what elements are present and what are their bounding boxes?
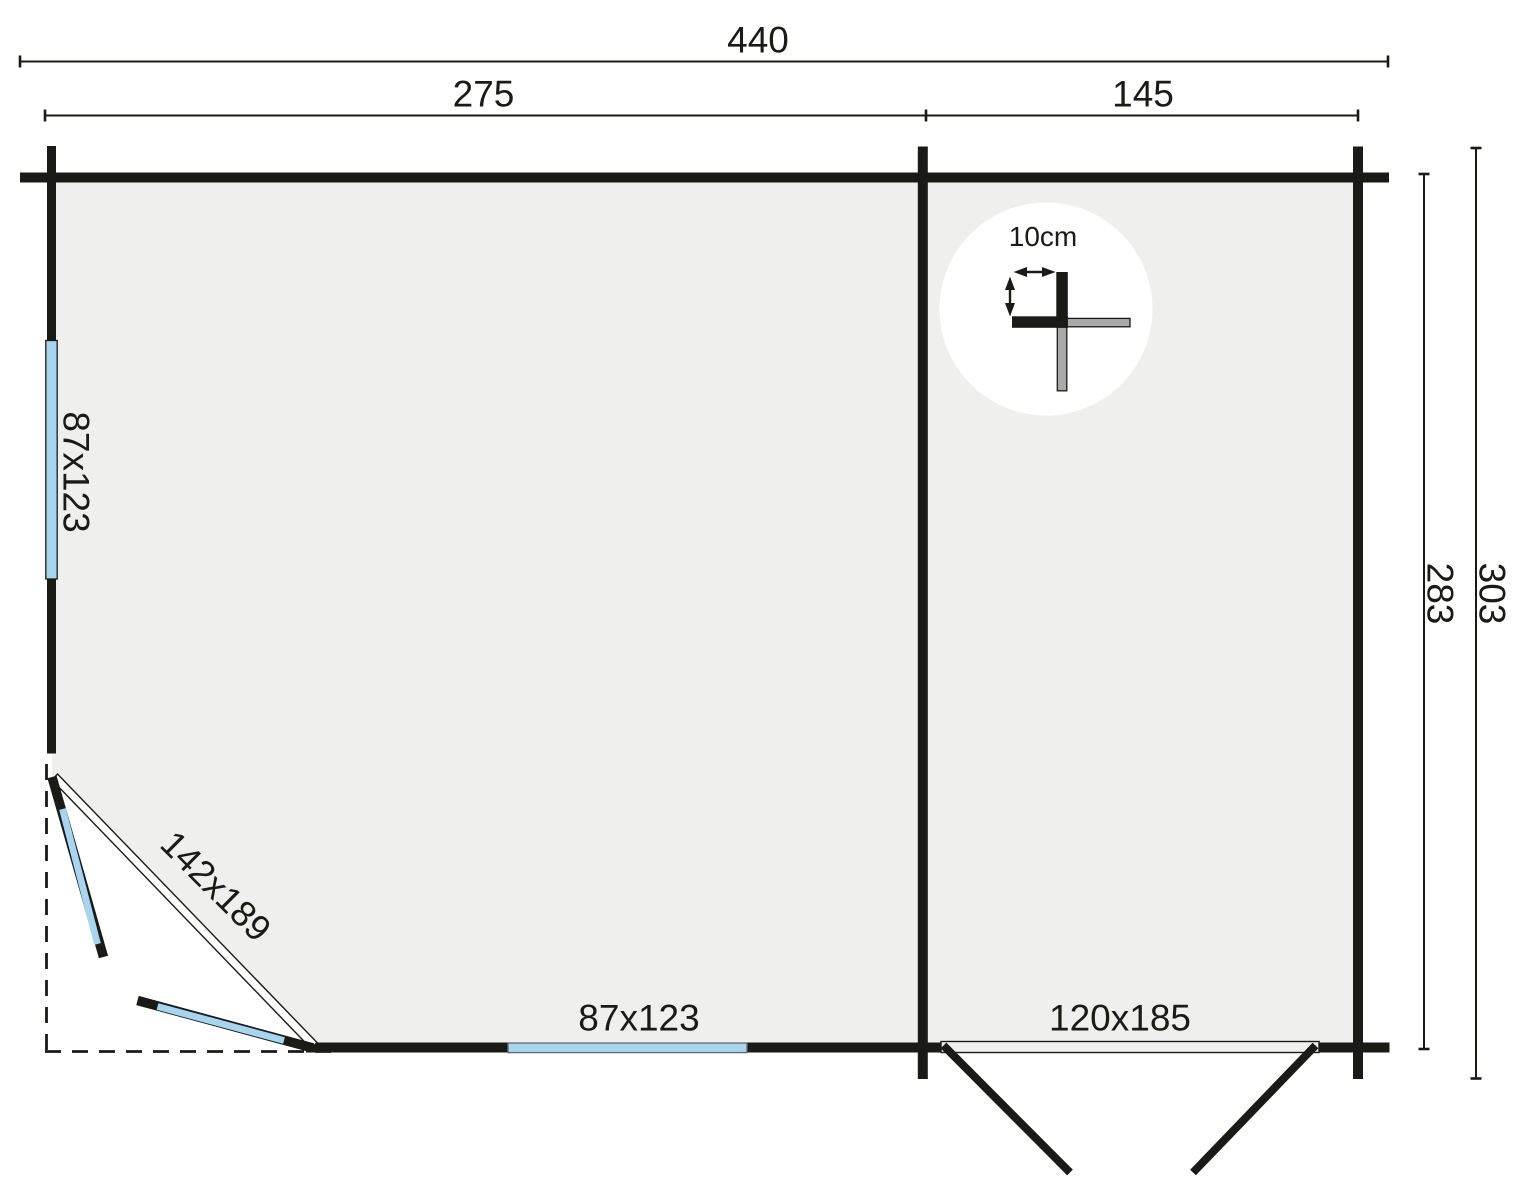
svg-text:303: 303 (1471, 563, 1512, 625)
svg-text:440: 440 (727, 20, 789, 61)
svg-text:283: 283 (1420, 563, 1461, 625)
svg-text:145: 145 (1112, 74, 1174, 115)
svg-text:10cm: 10cm (1009, 221, 1077, 252)
svg-text:275: 275 (453, 74, 515, 115)
svg-text:87x123: 87x123 (578, 998, 699, 1039)
svg-text:87x123: 87x123 (56, 411, 97, 532)
svg-text:120x185: 120x185 (1049, 998, 1191, 1039)
